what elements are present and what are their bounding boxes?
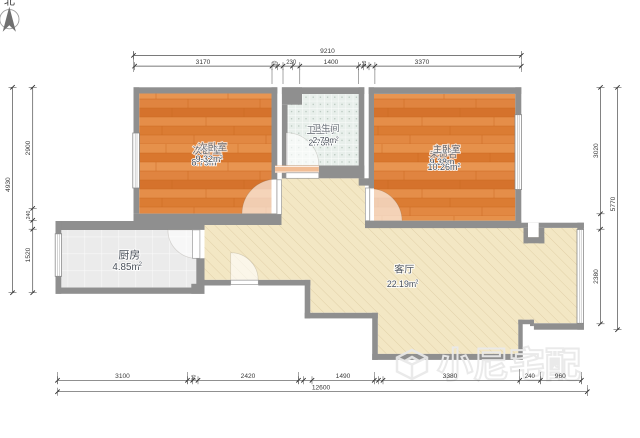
svg-text:2.79m: 2.79m (313, 135, 337, 145)
svg-text:9.32m: 9.32m (195, 154, 220, 164)
svg-text:3100: 3100 (115, 373, 130, 380)
svg-text:2: 2 (220, 155, 223, 161)
svg-text:2420: 2420 (241, 373, 256, 380)
svg-text:960: 960 (555, 373, 566, 380)
svg-text:3370: 3370 (415, 59, 430, 66)
svg-text:4.85m: 4.85m (112, 262, 139, 273)
svg-text:230: 230 (286, 60, 297, 66)
svg-text:9210: 9210 (320, 48, 335, 55)
svg-text:2: 2 (415, 279, 418, 285)
svg-text:3170: 3170 (196, 59, 211, 66)
svg-text:3380: 3380 (443, 373, 458, 380)
svg-text:22.19m: 22.19m (387, 279, 416, 289)
svg-text:2: 2 (336, 136, 339, 142)
svg-text:2900: 2900 (25, 140, 32, 155)
svg-text:1490: 1490 (336, 373, 351, 380)
svg-text:5770: 5770 (610, 196, 617, 211)
svg-text:1520: 1520 (25, 247, 32, 262)
svg-text:12600: 12600 (312, 384, 331, 391)
svg-text:10.26m: 10.26m (427, 162, 457, 172)
svg-text:1400: 1400 (324, 59, 339, 66)
svg-text:10: 10 (362, 61, 368, 67)
svg-text:90: 90 (191, 375, 197, 381)
svg-text:2380: 2380 (593, 269, 600, 284)
svg-text:2: 2 (458, 163, 461, 169)
svg-text:4930: 4930 (5, 177, 12, 192)
svg-text:10: 10 (273, 61, 279, 67)
svg-text:240: 240 (26, 211, 32, 220)
svg-text:3020: 3020 (593, 143, 600, 158)
svg-text:240: 240 (525, 374, 536, 380)
